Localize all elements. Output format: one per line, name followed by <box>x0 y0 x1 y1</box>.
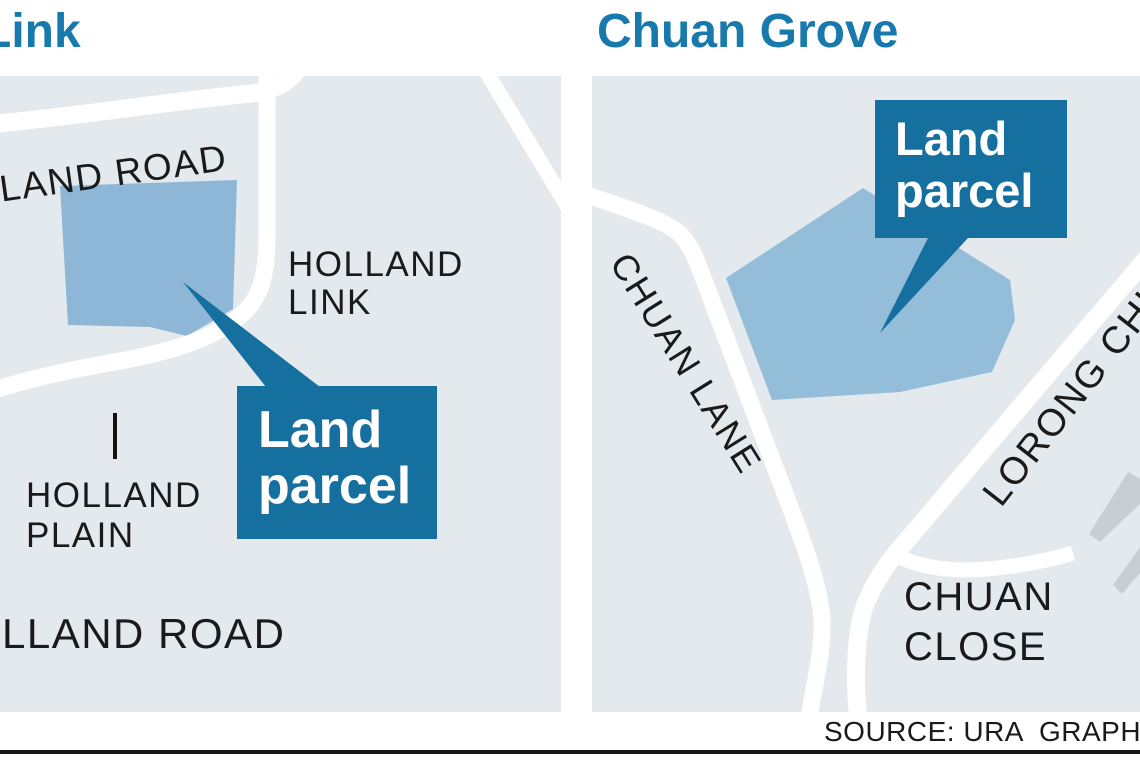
holland-callout-line1: Land <box>258 402 437 458</box>
holland-link-label-line2: LINK <box>288 284 464 322</box>
map-panel-chuan-grove: CHUAN LANE LORONG CHUAN CHUAN CLOSE Land… <box>592 76 1140 712</box>
holland-link-label: HOLLAND LINK <box>288 246 464 322</box>
chuan-close-label-line2: CLOSE <box>904 622 1054 672</box>
holland-plain-label-line1: HOLLAND <box>26 476 202 516</box>
map-title-chuan-grove: Chuan Grove <box>597 4 898 59</box>
holland-land-parcel-callout: Land parcel <box>237 386 437 539</box>
chuan-callout-line2: parcel <box>895 165 1067 217</box>
holland-link-label-line1: HOLLAND <box>288 246 464 284</box>
chuan-land-parcel-callout: Land parcel <box>875 100 1067 238</box>
holland-road-bottom-label: HOLLAND ROAD <box>0 610 285 657</box>
holland-callout-line2: parcel <box>258 458 437 514</box>
chuan-close-road <box>897 553 1073 570</box>
infographic-page: { "titles": { "left": "Link", "right": "… <box>0 0 1140 760</box>
map-panel-holland-link: HOLLAND ROAD HOLLAND LINK HOLLAND PLAIN … <box>0 76 561 712</box>
map-title-holland-link: Link <box>0 4 81 59</box>
building-block-lower <box>1113 542 1140 594</box>
holland-road-top-road <box>0 76 298 124</box>
chuan-close-label-line1: CHUAN <box>904 572 1054 622</box>
bottom-divider-rule <box>0 750 1140 754</box>
building-block-upper <box>1089 472 1140 542</box>
chuan-callout-line1: Land <box>895 113 1067 165</box>
chuan-close-label: CHUAN CLOSE <box>904 572 1054 672</box>
holland-plain-label-line2: PLAIN <box>26 516 202 556</box>
holland-plain-pointer-line <box>113 413 117 459</box>
source-credit-text: SOURCE: URA GRAPHICS <box>824 716 1140 748</box>
holland-diagonal-road <box>484 76 561 224</box>
holland-plain-label: HOLLAND PLAIN <box>26 476 202 556</box>
